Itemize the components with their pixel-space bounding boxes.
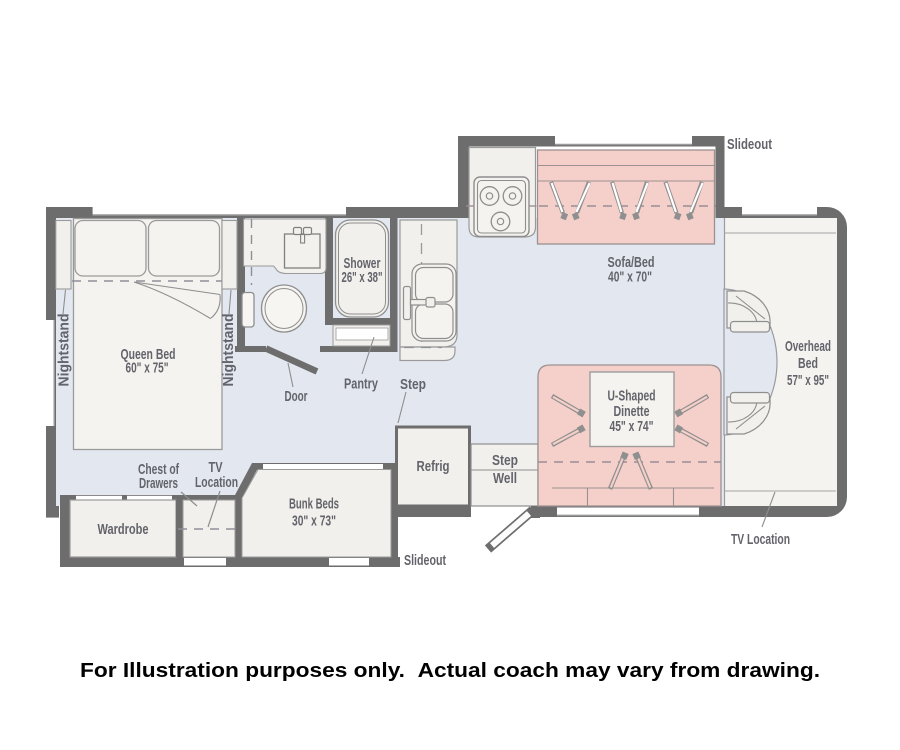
svg-text:TV Location: TV Location xyxy=(731,531,790,548)
svg-text:Step: Step xyxy=(492,452,518,469)
svg-text:U-Shaped: U-Shaped xyxy=(608,388,656,405)
svg-text:Wardrobe: Wardrobe xyxy=(98,521,149,538)
svg-text:Refrig: Refrig xyxy=(417,458,450,475)
svg-text:60" x 75": 60" x 75" xyxy=(126,360,169,377)
svg-text:Step: Step xyxy=(400,376,426,393)
svg-text:26" x 38": 26" x 38" xyxy=(342,269,383,286)
svg-text:45" x 74": 45" x 74" xyxy=(610,418,654,435)
svg-text:Bunk Beds: Bunk Beds xyxy=(289,496,339,513)
svg-text:40" x 70": 40" x 70" xyxy=(608,269,652,286)
svg-text:Pantry: Pantry xyxy=(344,376,378,393)
svg-text:Well: Well xyxy=(493,470,517,487)
svg-text:Location: Location xyxy=(195,474,238,491)
svg-text:57" x 95": 57" x 95" xyxy=(787,372,829,389)
svg-text:Slideout: Slideout xyxy=(727,136,772,153)
svg-text:Door: Door xyxy=(285,388,308,405)
svg-text:Slideout: Slideout xyxy=(404,552,446,569)
svg-text:30" x 73": 30" x 73" xyxy=(292,513,336,530)
svg-text:For Illustration purposes only: For Illustration purposes only. Actual c… xyxy=(80,659,820,682)
svg-text:Nightstand: Nightstand xyxy=(56,314,73,387)
svg-text:Bed: Bed xyxy=(798,355,818,372)
svg-text:Drawers: Drawers xyxy=(139,475,178,492)
svg-text:Nightstand: Nightstand xyxy=(220,314,237,387)
svg-text:Overhead: Overhead xyxy=(785,338,831,355)
